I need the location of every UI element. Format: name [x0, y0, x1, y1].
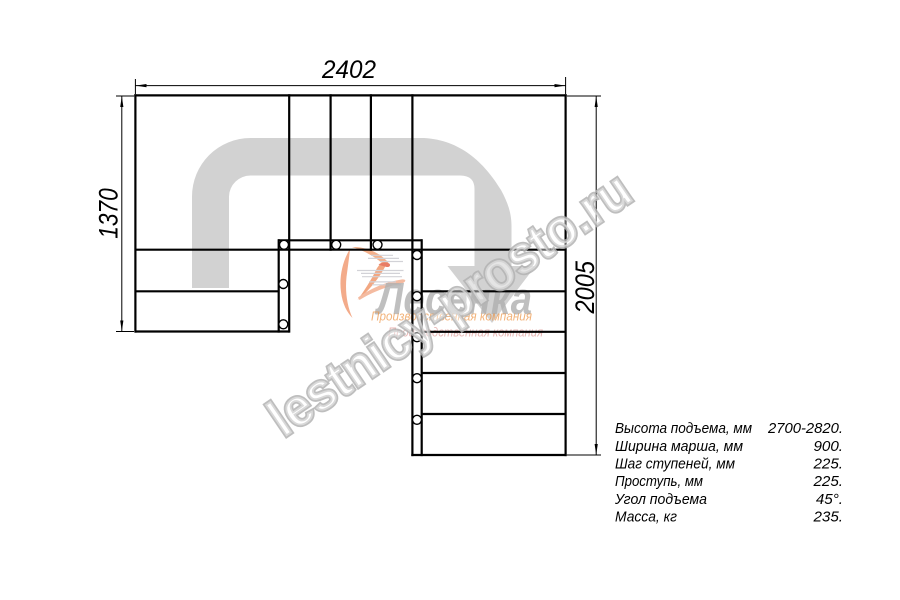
svg-text:225.: 225. — [812, 456, 843, 473]
svg-text:2402: 2402 — [321, 56, 376, 84]
svg-text:235.: 235. — [812, 509, 843, 526]
svg-text:Угол подъема: Угол подъема — [614, 491, 707, 508]
svg-text:Шаг ступеней, мм: Шаг ступеней, мм — [615, 456, 736, 473]
svg-text:900.: 900. — [813, 438, 843, 455]
svg-text:2700-2820.: 2700-2820. — [767, 420, 843, 437]
svg-text:Высота подъема, мм: Высота подъема, мм — [615, 420, 753, 437]
svg-text:1370: 1370 — [94, 188, 124, 239]
svg-text:Проступь, мм: Проступь, мм — [615, 473, 704, 490]
svg-text:45°.: 45°. — [816, 491, 843, 508]
svg-text:225.: 225. — [812, 473, 843, 490]
svg-text:2005: 2005 — [570, 261, 600, 315]
svg-text:Ширина марша, мм: Ширина марша, мм — [615, 438, 744, 455]
svg-text:Масса, кг: Масса, кг — [615, 509, 677, 526]
